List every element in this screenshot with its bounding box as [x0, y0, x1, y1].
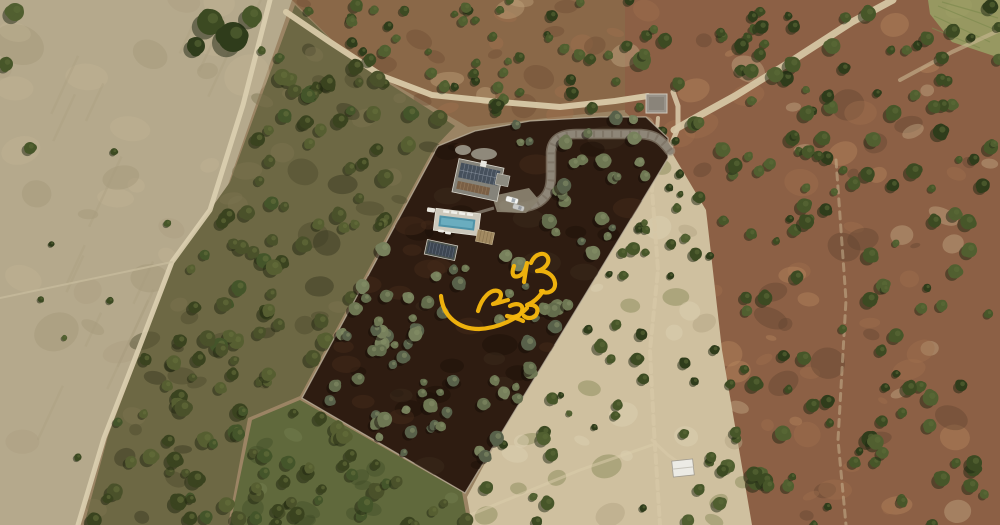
- house-wing: [495, 173, 510, 186]
- white-shed: [672, 459, 695, 477]
- satellite-map-viewport: [0, 0, 1000, 525]
- chimney: [480, 160, 487, 167]
- stone-patio: [455, 145, 471, 155]
- stone-patio: [471, 148, 497, 160]
- aerial-scene: [0, 0, 1000, 525]
- entrance-structure: [646, 94, 667, 113]
